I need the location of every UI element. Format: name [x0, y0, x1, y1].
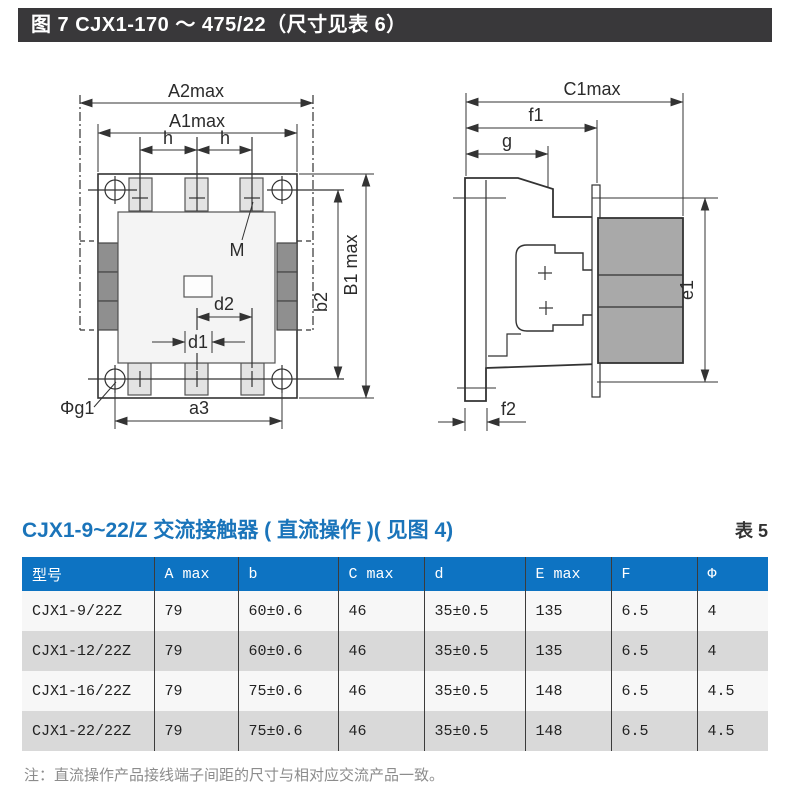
footnote: 注：直流操作产品接线端子间距的尺寸与相对应交流产品一致。	[24, 764, 444, 785]
dim-label-h2: h	[220, 128, 230, 148]
cell-f: 6.5	[611, 711, 697, 751]
cell-model: CJX1-12/22Z	[22, 631, 154, 671]
cell-phi: 4	[697, 631, 768, 671]
cell-b: 60±0.6	[238, 591, 338, 631]
col-header-model: 型号	[22, 557, 154, 591]
cell-emax: 148	[525, 671, 611, 711]
table-row: CJX1-9/22Z 79 60±0.6 46 35±0.5 135 6.5 4	[22, 591, 768, 631]
cell-b: 75±0.6	[238, 711, 338, 751]
cell-emax: 148	[525, 711, 611, 751]
cell-d: 35±0.5	[424, 671, 525, 711]
cell-f: 6.5	[611, 671, 697, 711]
cell-cmax: 46	[338, 711, 424, 751]
section-title: CJX1-9~22/Z 交流接触器 ( 直流操作 )( 见图 4)	[22, 514, 453, 544]
col-header-amax: A max	[154, 557, 238, 591]
cell-cmax: 46	[338, 671, 424, 711]
table-number-tag: 表 5	[735, 517, 768, 543]
cell-amax: 79	[154, 591, 238, 631]
dim-label-g: g	[502, 131, 512, 151]
dimension-table: 型号 A max b C max d E max F Φ CJX1-9/22Z …	[22, 557, 768, 751]
dim-label-f1: f1	[528, 105, 543, 125]
cell-cmax: 46	[338, 591, 424, 631]
dimension-diagram: A2max A1max h h M b2 B1 max d2 d1 a3 Φg1	[0, 0, 790, 505]
dim-label-a1max: A1max	[169, 111, 225, 131]
cell-model: CJX1-9/22Z	[22, 591, 154, 631]
cell-b: 60±0.6	[238, 631, 338, 671]
cell-d: 35±0.5	[424, 591, 525, 631]
col-header-cmax: C max	[338, 557, 424, 591]
cell-emax: 135	[525, 631, 611, 671]
dim-label-phig1: Φg1	[60, 398, 94, 418]
cell-model: CJX1-16/22Z	[22, 671, 154, 711]
cell-emax: 135	[525, 591, 611, 631]
table-row: CJX1-16/22Z 79 75±0.6 46 35±0.5 148 6.5 …	[22, 671, 768, 711]
dim-label-a3: a3	[189, 398, 209, 418]
dim-label-e1: e1	[677, 280, 697, 300]
col-header-d: d	[424, 557, 525, 591]
catalog-page: { "header_bar": { "text": "图 7 CJX1-170 …	[0, 0, 790, 811]
cell-f: 6.5	[611, 631, 697, 671]
cell-phi: 4.5	[697, 711, 768, 751]
dim-label-b2: b2	[311, 292, 331, 312]
cell-d: 35±0.5	[424, 631, 525, 671]
dim-label-f2: f2	[501, 399, 516, 419]
table-header-row: 型号 A max b C max d E max F Φ	[22, 557, 768, 591]
cell-amax: 79	[154, 711, 238, 751]
cell-f: 6.5	[611, 591, 697, 631]
dim-label-b1max: B1 max	[341, 234, 361, 295]
dim-label-a2max: A2max	[168, 81, 224, 101]
table-row: CJX1-12/22Z 79 60±0.6 46 35±0.5 135 6.5 …	[22, 631, 768, 671]
dim-label-h1: h	[163, 128, 173, 148]
col-header-b: b	[238, 557, 338, 591]
dim-label-d2: d2	[214, 294, 234, 314]
cell-b: 75±0.6	[238, 671, 338, 711]
cell-d: 35±0.5	[424, 711, 525, 751]
cell-cmax: 46	[338, 631, 424, 671]
cell-model: CJX1-22/22Z	[22, 711, 154, 751]
table-row: CJX1-22/22Z 79 75±0.6 46 35±0.5 148 6.5 …	[22, 711, 768, 751]
dim-label-d1: d1	[188, 332, 208, 352]
cell-phi: 4	[697, 591, 768, 631]
cell-amax: 79	[154, 671, 238, 711]
dim-label-m: M	[230, 240, 245, 260]
section-title-row: CJX1-9~22/Z 交流接触器 ( 直流操作 )( 见图 4) 表 5	[22, 514, 768, 546]
col-header-phi: Φ	[697, 557, 768, 591]
cell-phi: 4.5	[697, 671, 768, 711]
col-header-emax: E max	[525, 557, 611, 591]
col-header-f: F	[611, 557, 697, 591]
dim-label-c1max: C1max	[563, 79, 620, 99]
cell-amax: 79	[154, 631, 238, 671]
